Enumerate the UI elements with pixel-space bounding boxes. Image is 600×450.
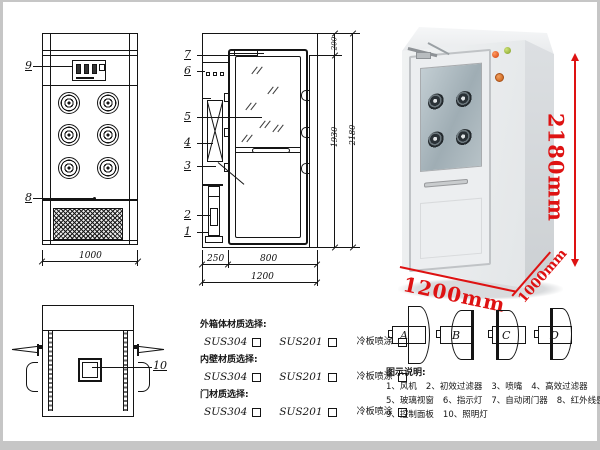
line — [129, 34, 130, 244]
side-dim-250: 250 — [207, 255, 224, 264]
pedestal-base — [205, 236, 223, 243]
legend-item: 8、红外线感应器 — [557, 396, 600, 406]
nozzle — [456, 128, 473, 146]
return-air-grille — [53, 208, 123, 240]
option-latch — [534, 330, 539, 338]
control-panel-switch[interactable] — [92, 64, 97, 74]
frame-left — [0, 0, 3, 450]
glass-mark — [260, 120, 272, 130]
side-dim-1930: 1930 — [331, 122, 339, 152]
legend-title: 图示说明: — [386, 368, 426, 379]
glass-mark — [268, 86, 280, 96]
legend-item: 10、照明灯 — [443, 410, 488, 420]
nozzle — [58, 92, 80, 114]
legend-item: 5、玻璃视窗 — [386, 396, 434, 406]
dim-line-height — [574, 60, 576, 260]
frame-top — [0, 0, 600, 2]
leader-line — [197, 166, 216, 167]
option-latch — [488, 330, 493, 338]
nozzle — [97, 157, 119, 179]
leader-line — [197, 71, 205, 72]
material-option-label: SUS304 — [204, 406, 247, 418]
ceiling-light-inner — [82, 362, 98, 378]
checkbox[interactable] — [252, 408, 261, 417]
red-indicator-light — [492, 51, 499, 58]
control-panel-display — [99, 64, 105, 71]
leader-line — [197, 215, 211, 216]
cabinet-door[interactable] — [409, 49, 491, 272]
legend-item: 7、自动闭门器 — [491, 396, 547, 406]
ext-line — [310, 55, 342, 56]
emergency-button[interactable] — [495, 73, 504, 82]
line — [309, 55, 310, 247]
arrow-down — [571, 259, 579, 267]
door-pull — [26, 362, 38, 392]
dim-line — [42, 261, 138, 262]
fan-unit-brace — [207, 100, 223, 162]
material-options-row: SUS304 SUS201 冷板喷涂 — [204, 336, 407, 348]
air-shower-spec-sheet: 9 8 1000 — [0, 0, 600, 450]
door-closer-body — [416, 52, 431, 59]
leader-line — [197, 117, 262, 118]
line — [230, 53, 264, 54]
callout-3: 3 — [184, 160, 191, 171]
side-dim-800: 800 — [260, 255, 277, 264]
nozzle — [58, 157, 80, 179]
side-dim-200: 200 — [332, 36, 339, 52]
material-options-row: SUS304 SUS201 冷板喷涂 — [204, 371, 407, 383]
arrow-up — [571, 53, 579, 61]
material-option-label: 冷板喷涂 — [357, 337, 393, 348]
callout-1: 1 — [184, 226, 191, 237]
leader-line — [197, 55, 237, 56]
line — [43, 85, 137, 86]
indicator-lights — [213, 72, 217, 76]
material-option-label: SUS304 — [204, 371, 247, 383]
nozzle — [58, 124, 80, 146]
hinge — [224, 128, 230, 137]
line — [43, 330, 133, 331]
hinge — [38, 345, 42, 349]
hinge — [224, 93, 230, 102]
nozzle — [456, 90, 473, 108]
material-group-title: 外箱体材质选择: — [200, 320, 267, 331]
option-latch — [436, 330, 441, 338]
door-window — [420, 63, 482, 172]
dim-line — [202, 264, 318, 265]
option-label: B — [452, 329, 460, 342]
line — [43, 55, 137, 56]
line — [43, 50, 137, 51]
door-handle[interactable] — [424, 179, 468, 188]
leader-line — [33, 198, 95, 199]
photo-dim-height: 2180mm — [544, 98, 569, 238]
leader-line — [197, 232, 208, 233]
callout-2: 2 — [184, 209, 191, 220]
material-option-label: SUS201 — [279, 371, 322, 383]
wall-section — [48, 331, 53, 411]
callout-5: 5 — [184, 111, 191, 122]
material-group-title: 门材质选择: — [200, 390, 249, 401]
nozzle — [97, 92, 119, 114]
line — [137, 344, 139, 356]
glass-mark — [242, 134, 254, 144]
leader-line — [33, 66, 72, 67]
line — [203, 62, 228, 63]
hinge — [133, 345, 137, 349]
legend-row: 1、风机 2、初效过滤器 3、喷嘴 4、高效过滤器 — [386, 382, 588, 392]
indicator-lights — [206, 72, 210, 76]
door-lower-panel — [420, 198, 482, 259]
frame-bottom — [0, 441, 600, 450]
side-dim-1200: 1200 — [251, 273, 274, 282]
pedestal-insert — [210, 208, 218, 226]
front-width-dim: 1000 — [79, 252, 102, 261]
checkbox[interactable] — [252, 373, 261, 382]
nozzle — [428, 93, 445, 111]
legend-item: 2、初效过滤器 — [426, 382, 482, 392]
ext-line — [228, 250, 229, 268]
callout-4: 4 — [184, 137, 191, 148]
line — [203, 98, 211, 99]
leader-dot — [93, 197, 96, 200]
leader-line — [92, 367, 152, 368]
leader-line — [197, 143, 213, 144]
nozzle — [428, 131, 445, 149]
legend-item: 1、风机 — [386, 382, 417, 392]
legend-item: 4、高效过滤器 — [531, 382, 587, 392]
callout-8: 8 — [25, 192, 32, 203]
checkbox[interactable] — [328, 373, 337, 382]
callout-7: 7 — [184, 49, 191, 60]
control-panel-switch[interactable] — [76, 64, 81, 74]
nozzle — [97, 124, 119, 146]
legend-row: 5、玻璃视窗 6、指示灯 7、自动闭门器 8、红外线感应器 — [386, 396, 600, 406]
checkbox[interactable] — [328, 338, 337, 347]
indicator-lights — [220, 72, 224, 76]
dim-line — [202, 282, 318, 283]
side-nozzle — [301, 90, 310, 101]
tick — [135, 258, 141, 264]
legend-row: 9、控制面板 10、照明灯 — [386, 410, 488, 420]
option-label: D — [550, 329, 559, 342]
green-indicator-light — [504, 47, 511, 54]
door-handle[interactable] — [252, 148, 290, 153]
glass-mark — [273, 124, 285, 134]
legend-item: 3、喷嘴 — [491, 382, 522, 392]
material-option-label: SUS201 — [279, 406, 322, 418]
option-frame — [392, 326, 426, 344]
line — [12, 349, 38, 353]
control-panel-switch[interactable] — [84, 64, 89, 74]
option-label: A — [400, 329, 408, 342]
line — [208, 196, 220, 197]
side-nozzle — [301, 163, 310, 174]
glass-mark — [246, 102, 258, 112]
checkbox[interactable] — [328, 408, 337, 417]
checkbox[interactable] — [252, 338, 261, 347]
line — [43, 240, 137, 241]
ext-line — [137, 250, 138, 266]
material-option-label: SUS201 — [279, 336, 322, 348]
material-options-row: SUS304 SUS201 冷板喷涂 — [204, 406, 407, 418]
line — [138, 349, 164, 353]
line — [76, 77, 94, 79]
material-group-title: 内壁材质选择: — [200, 355, 258, 366]
glass-mark — [252, 66, 264, 76]
callout-10: 10 — [153, 360, 167, 371]
side-nozzle — [301, 127, 310, 138]
wall-section — [123, 331, 128, 411]
option-label: C — [502, 329, 510, 342]
material-option-label: SUS304 — [204, 336, 247, 348]
callout-6: 6 — [184, 65, 191, 76]
legend-item: 9、控制面板 — [386, 410, 434, 420]
side-dim-2180: 2180 — [349, 120, 357, 150]
option-latch — [388, 330, 393, 338]
line — [43, 199, 137, 201]
callout-9: 9 — [25, 60, 32, 71]
legend-item: 6、指示灯 — [443, 396, 482, 406]
